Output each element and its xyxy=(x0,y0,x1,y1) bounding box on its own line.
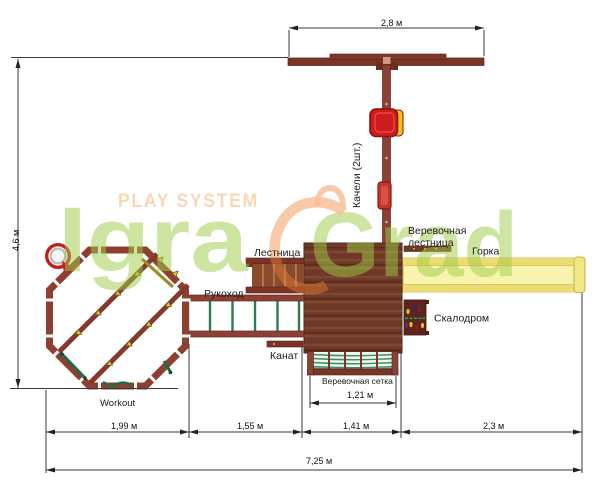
svg-text:1,21 м: 1,21 м xyxy=(347,390,373,400)
svg-text:Горка: Горка xyxy=(472,246,499,258)
svg-text:Качели (2шт.): Качели (2шт.) xyxy=(351,143,363,208)
svg-text:2,8 м: 2,8 м xyxy=(381,18,402,28)
svg-text:лестница: лестница xyxy=(408,237,454,249)
svg-text:Скалодром: Скалодром xyxy=(434,313,489,325)
svg-text:Лестница: Лестница xyxy=(254,247,300,259)
svg-text:2,3 м: 2,3 м xyxy=(483,421,504,431)
svg-text:4,6 м: 4,6 м xyxy=(11,230,21,251)
svg-text:1,41 м: 1,41 м xyxy=(343,421,369,431)
svg-text:1,55 м: 1,55 м xyxy=(237,421,263,431)
svg-text:1,99 м: 1,99 м xyxy=(111,421,137,431)
svg-text:Igra: Igra xyxy=(58,189,249,291)
svg-text:Веревочная сетка: Веревочная сетка xyxy=(322,376,393,386)
svg-text:7,25 м: 7,25 м xyxy=(306,456,332,466)
svg-text:Веревочная: Веревочная xyxy=(408,225,466,237)
svg-text:Рукоход: Рукоход xyxy=(204,288,244,300)
svg-text:Workout: Workout xyxy=(100,398,136,409)
svg-text:Канат: Канат xyxy=(270,350,298,362)
